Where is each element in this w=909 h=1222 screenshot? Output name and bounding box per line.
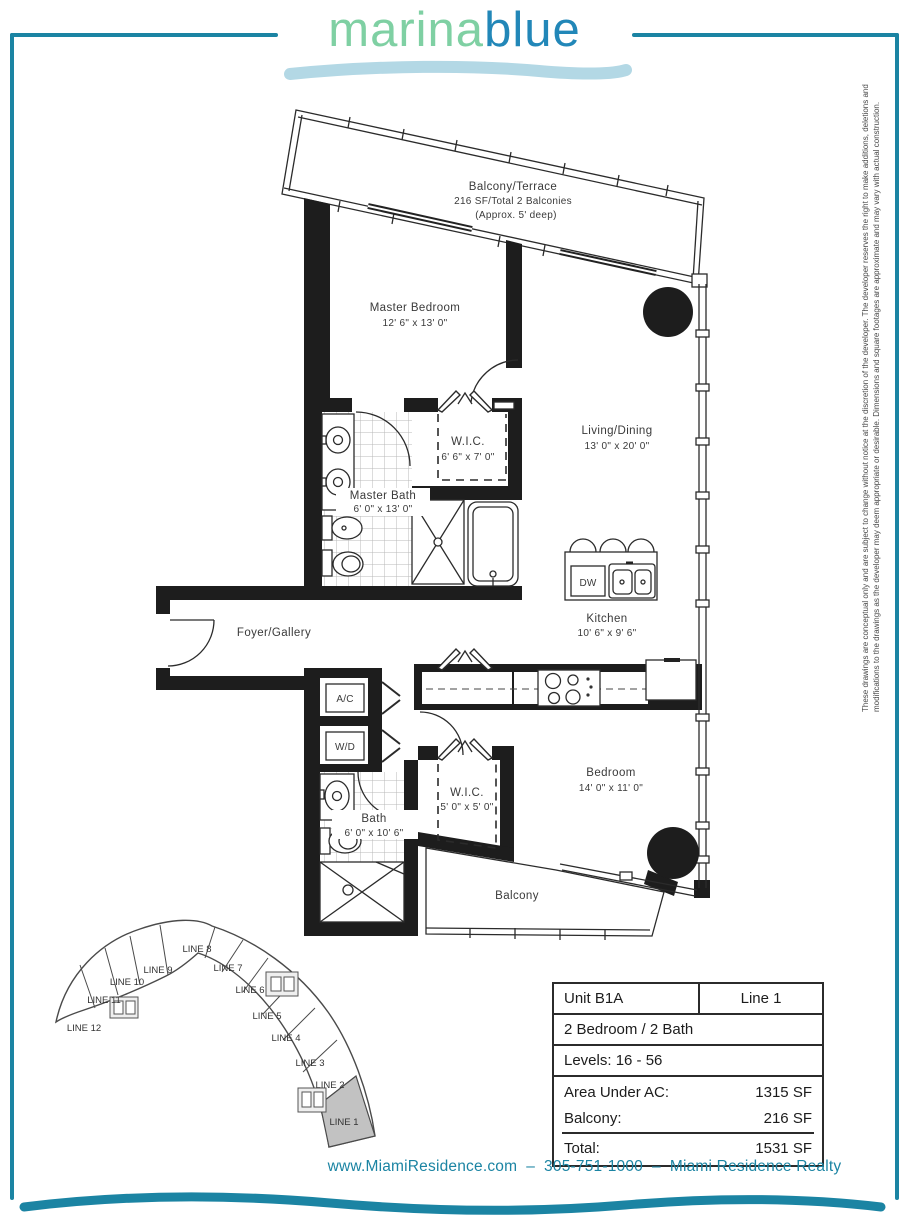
room-bath2: Bath 6' 0" x 10' 6" [320,772,418,922]
terrace-label-1: Balcony/Terrace [469,181,557,193]
master-bedroom-label: Master Bedroom [370,302,461,314]
room-wic-master: W.I.C. 6' 6" x 7' 0" [438,391,514,480]
keyplan-line-6: LINE 6 [235,985,264,996]
ac-area-value: 1315 SF [755,1084,812,1101]
bedroom2-dims: 14' 0" x 11' 0" [579,783,643,794]
balcony2-label: Balcony [495,890,539,902]
balcony-terrace: Balcony/Terrace 216 SF/Total 2 Balconies… [282,110,707,287]
keyplan-line-10: LINE 10 [110,977,144,988]
room-living-dining: Living/Dining 13' 0" x 20' 0" [581,425,652,452]
column-bottom [647,827,699,879]
disclaimer-line-2: modifications to the drawings as the dev… [871,112,882,712]
total-area-label: Total: [564,1140,600,1157]
kitchen-island: DW [565,539,657,600]
total-divider [562,1132,814,1134]
keyplan: LINE 1 LINE 2 LINE 3 LINE 4 LINE 5 LINE … [56,920,375,1147]
unit-spec-table: Unit B1A Line 1 2 Bedroom / 2 Bath Level… [552,982,824,1167]
unit-name: Unit B1A [554,990,698,1007]
master-bath-dims: 6' 0" x 13' 0" [353,504,412,515]
kitchen-label: Kitchen [586,613,627,625]
wic2-dims: 5' 0" x 5' 0" [440,802,493,813]
disclaimer: These drawings are conceptual only and a… [860,112,882,712]
keyplan-line-11: LINE 11 [87,995,121,1006]
terrace-label-2: 216 SF/Total 2 Balconies [454,196,572,207]
keyplan-line-9: LINE 9 [143,965,172,976]
keyplan-line-12: LINE 12 [67,1023,101,1034]
spec-row-unit: Unit B1A Line 1 [554,984,822,1015]
line-name: Line 1 [698,984,822,1013]
brochure-page: marinablue Balco [0,0,909,1222]
room-foyer: Foyer/Gallery [154,614,311,668]
disclaimer-line-1: These drawings are conceptual only and a… [860,112,871,712]
closet-ac: A/C [320,678,400,716]
dishwasher-label: DW [579,578,596,589]
balcony-area-label: Balcony: [564,1110,622,1127]
keyplan-line-7: LINE 7 [213,963,242,974]
wic-master-label: W.I.C. [451,436,485,448]
balcony-area-value: 216 SF [764,1110,812,1127]
column-top [643,287,693,337]
room-master-bedroom: Master Bedroom 12' 6" x 13' 0" [370,302,518,402]
kitchen-dims: 10' 6" x 9' 6" [577,628,636,639]
spec-row-bedbath: 2 Bedroom / 2 Bath [554,1015,822,1046]
keyplan-line-8: LINE 8 [182,944,211,955]
keyplan-line-1: LINE 1 [329,1117,358,1128]
balcony2: Balcony [426,848,664,940]
master-bath-label: Master Bath [350,490,416,502]
room-bedroom2: Bedroom 14' 0" x 11' 0" [420,712,643,794]
terrace-label-3: (Approx. 5' deep) [475,210,557,221]
wic2-label: W.I.C. [450,787,484,799]
kitchen-counter: Kitchen 10' 6" x 9' 6" [422,613,696,706]
wd-label: W/D [335,742,355,753]
closet-wd: W/D [320,726,400,764]
bedroom2-label: Bedroom [586,767,635,779]
ac-label: A/C [336,694,353,705]
keyplan-line-5: LINE 5 [252,1011,281,1022]
bottom-wave [24,1197,881,1210]
spec-row-levels: Levels: 16 - 56 [554,1046,822,1077]
total-area-value: 1531 SF [755,1140,812,1157]
keyplan-line-3: LINE 3 [295,1058,324,1069]
spec-row-ac: Area Under AC: 1315 SF [554,1079,822,1105]
bath2-label: Bath [361,813,386,825]
keyplan-line-2: LINE 2 [315,1080,344,1091]
ac-area-label: Area Under AC: [564,1084,669,1101]
wic-master-dims: 6' 6" x 7' 0" [441,452,494,463]
room-wic2: W.I.C. 5' 0" x 5' 0" [438,739,496,848]
footer-contact: www.MiamiResidence.com – 305-751-1000 – … [290,1158,879,1176]
master-bedroom-dims: 12' 6" x 13' 0" [383,318,448,329]
keyplan-line-4: LINE 4 [271,1033,300,1044]
bath2-dims: 6' 0" x 10' 6" [344,828,403,839]
spec-row-balcony: Balcony: 216 SF [554,1105,822,1131]
living-label: Living/Dining [581,425,652,437]
living-dims: 13' 0" x 20' 0" [585,441,650,452]
spec-area-block: Area Under AC: 1315 SF Balcony: 216 SF T… [554,1077,822,1165]
foyer-label: Foyer/Gallery [237,627,311,639]
